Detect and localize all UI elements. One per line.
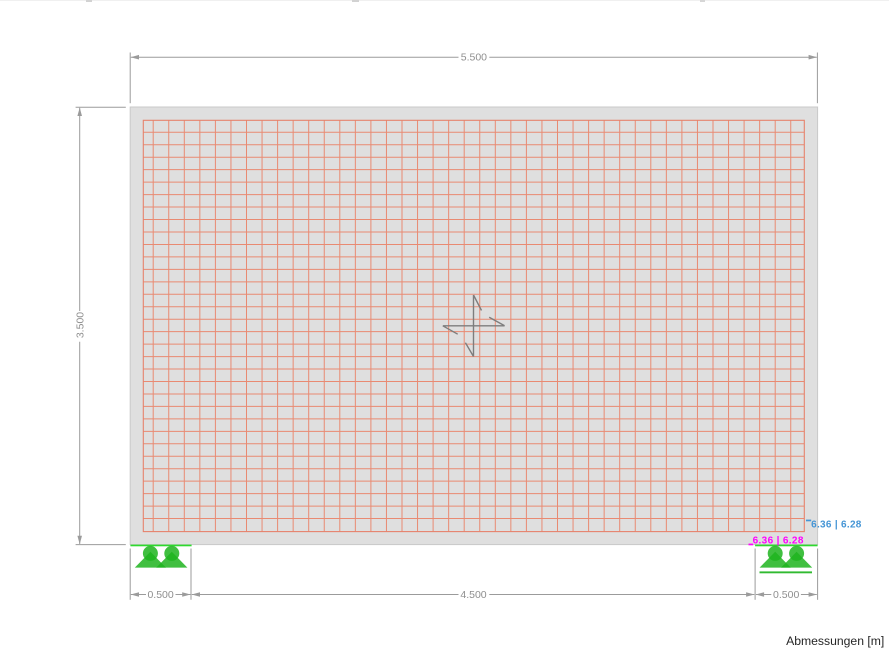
svg-text:4.500: 4.500 bbox=[460, 589, 486, 601]
svg-text:0.500: 0.500 bbox=[147, 589, 173, 601]
svg-text:6.36 | 6.28: 6.36 | 6.28 bbox=[811, 519, 862, 530]
svg-text:3.500: 3.500 bbox=[74, 312, 86, 338]
svg-text:5.500: 5.500 bbox=[461, 52, 487, 64]
svg-text:Abmessungen [m]: Abmessungen [m] bbox=[786, 634, 884, 648]
svg-text:0.500: 0.500 bbox=[773, 589, 799, 601]
svg-text:6.36 | 6.28: 6.36 | 6.28 bbox=[753, 536, 804, 547]
